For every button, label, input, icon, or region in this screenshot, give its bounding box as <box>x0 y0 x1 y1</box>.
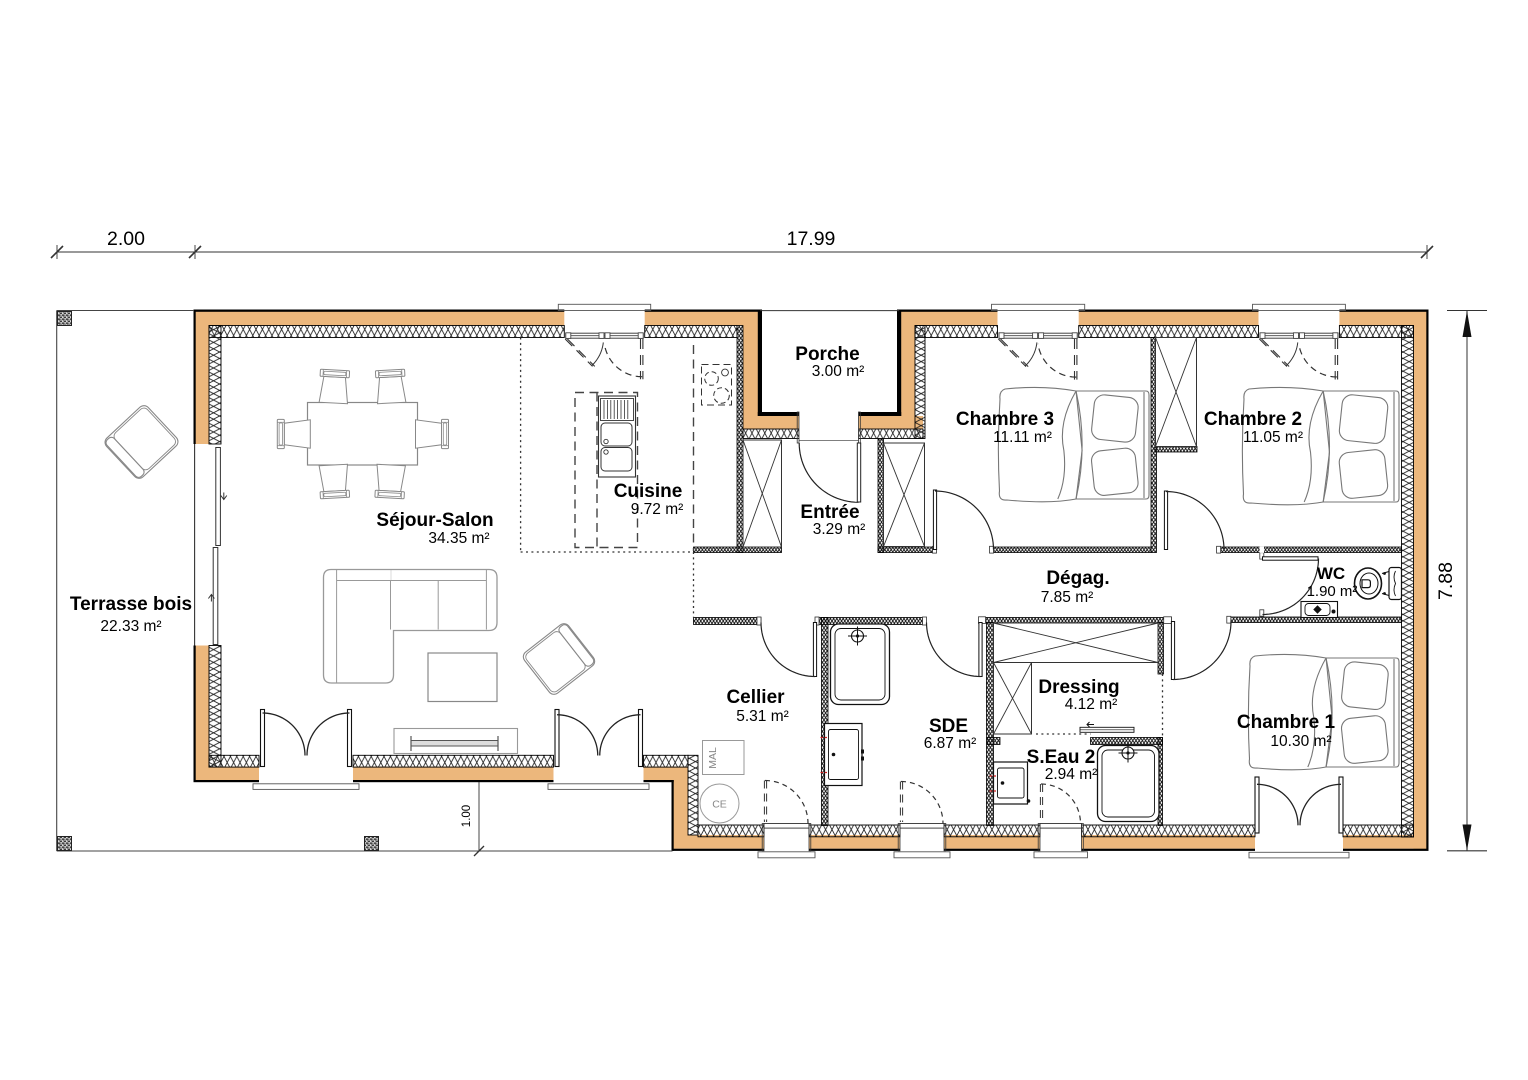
svg-text:7.88: 7.88 <box>1435 562 1457 600</box>
svg-text:SDE: SDE <box>929 716 968 737</box>
svg-text:22.33 m²: 22.33 m² <box>100 618 161 635</box>
svg-text:3.29 m²: 3.29 m² <box>813 521 866 538</box>
svg-text:10.30 m²: 10.30 m² <box>1270 733 1331 750</box>
svg-text:4.12 m²: 4.12 m² <box>1065 696 1118 713</box>
svg-text:7.85 m²: 7.85 m² <box>1041 589 1094 606</box>
svg-text:Entrée: Entrée <box>800 502 859 523</box>
svg-text:WC: WC <box>1317 564 1345 583</box>
svg-text:11.11 m²: 11.11 m² <box>993 429 1052 446</box>
svg-text:Porche: Porche <box>795 344 859 365</box>
svg-text:Chambre 1: Chambre 1 <box>1237 712 1336 733</box>
svg-text:6.87 m²: 6.87 m² <box>924 735 977 752</box>
svg-text:2.94 m²: 2.94 m² <box>1045 766 1098 783</box>
svg-text:17.99: 17.99 <box>787 228 836 250</box>
svg-text:34.35 m²: 34.35 m² <box>428 530 489 547</box>
svg-text:Chambre 3: Chambre 3 <box>956 409 1054 430</box>
svg-text:2.00: 2.00 <box>107 228 145 250</box>
svg-text:Chambre 2: Chambre 2 <box>1204 409 1302 430</box>
svg-text:Cellier: Cellier <box>726 687 785 708</box>
svg-text:3.00 m²: 3.00 m² <box>812 363 865 380</box>
svg-text:Cuisine: Cuisine <box>614 481 683 502</box>
svg-text:MAL: MAL <box>707 747 719 769</box>
svg-text:Dégag.: Dégag. <box>1046 568 1109 589</box>
svg-text:Séjour-Salon: Séjour-Salon <box>376 510 493 531</box>
svg-text:1.90 m²: 1.90 m² <box>1307 583 1358 600</box>
svg-text:1.00: 1.00 <box>461 805 473 827</box>
svg-text:5.31 m²: 5.31 m² <box>736 708 789 725</box>
svg-text:Terrasse bois: Terrasse bois <box>70 594 192 615</box>
svg-text:S.Eau 2: S.Eau 2 <box>1027 747 1096 768</box>
svg-text:CE: CE <box>712 799 727 811</box>
svg-text:11.05 m²: 11.05 m² <box>1243 429 1303 446</box>
svg-text:Dressing: Dressing <box>1038 677 1119 698</box>
svg-text:9.72 m²: 9.72 m² <box>631 501 684 518</box>
